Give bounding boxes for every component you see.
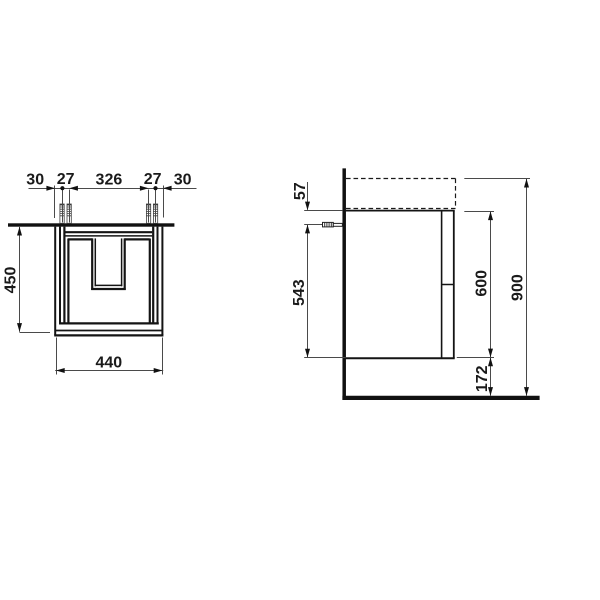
svg-text:30: 30 bbox=[26, 172, 44, 189]
svg-text:900: 900 bbox=[510, 274, 527, 301]
svg-text:57: 57 bbox=[292, 182, 309, 200]
svg-text:30: 30 bbox=[174, 172, 192, 189]
svg-text:27: 27 bbox=[144, 171, 162, 188]
svg-text:326: 326 bbox=[96, 172, 123, 189]
svg-text:600: 600 bbox=[474, 270, 491, 297]
svg-text:440: 440 bbox=[95, 354, 122, 371]
svg-text:450: 450 bbox=[2, 267, 19, 294]
svg-text:172: 172 bbox=[474, 365, 491, 392]
svg-text:543: 543 bbox=[291, 279, 308, 306]
svg-text:27: 27 bbox=[57, 171, 75, 188]
